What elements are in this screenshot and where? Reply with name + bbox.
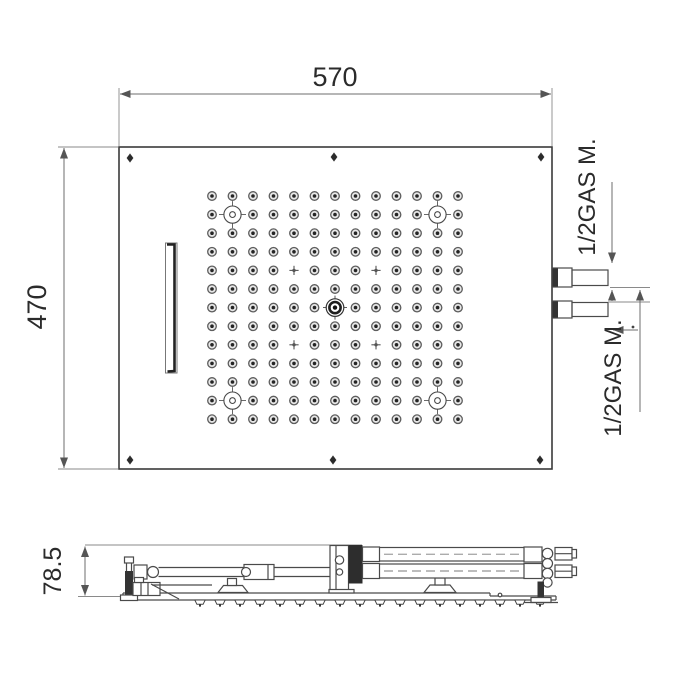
inlet-stub-bottom: [552, 301, 608, 318]
inlet-dimension-annotations: 1/2GAS M. 1/2GAS M.: [574, 138, 650, 436]
base-plate: [123, 593, 556, 600]
nozzle-grid: [208, 192, 463, 424]
inlet-elbow-assembly: [121, 557, 333, 601]
side-height-label: 78.5: [39, 547, 67, 596]
left-height-label: 470: [22, 284, 52, 329]
leader-dot: [632, 326, 635, 329]
left-dimension: 470: [22, 147, 118, 469]
mounting-foot: [524, 582, 558, 603]
water-inlets: [552, 268, 608, 318]
manifold-block: [329, 545, 363, 593]
top-width-label: 570: [312, 62, 357, 92]
inlet-stub-top: [552, 268, 608, 287]
supply-hoses: [363, 547, 543, 579]
waterfall-slot: [166, 243, 178, 373]
shower-head-technical-drawing: 570 470 1/2GAS M.: [0, 0, 700, 700]
technical-drawing-page: 570 470 1/2GAS M.: [0, 0, 700, 700]
top-dimension: 570: [119, 62, 552, 146]
spray-nozzle-bumps: [195, 600, 545, 607]
connection-label-top: 1/2GAS M.: [574, 138, 601, 255]
end-connectors: [542, 548, 576, 588]
side-view: 78.5: [39, 545, 577, 607]
side-dimension: 78.5: [39, 545, 362, 597]
connection-label-bottom: 1/2GAS M.: [600, 319, 627, 436]
top-view: 570 470 1/2GAS M.: [22, 62, 650, 469]
